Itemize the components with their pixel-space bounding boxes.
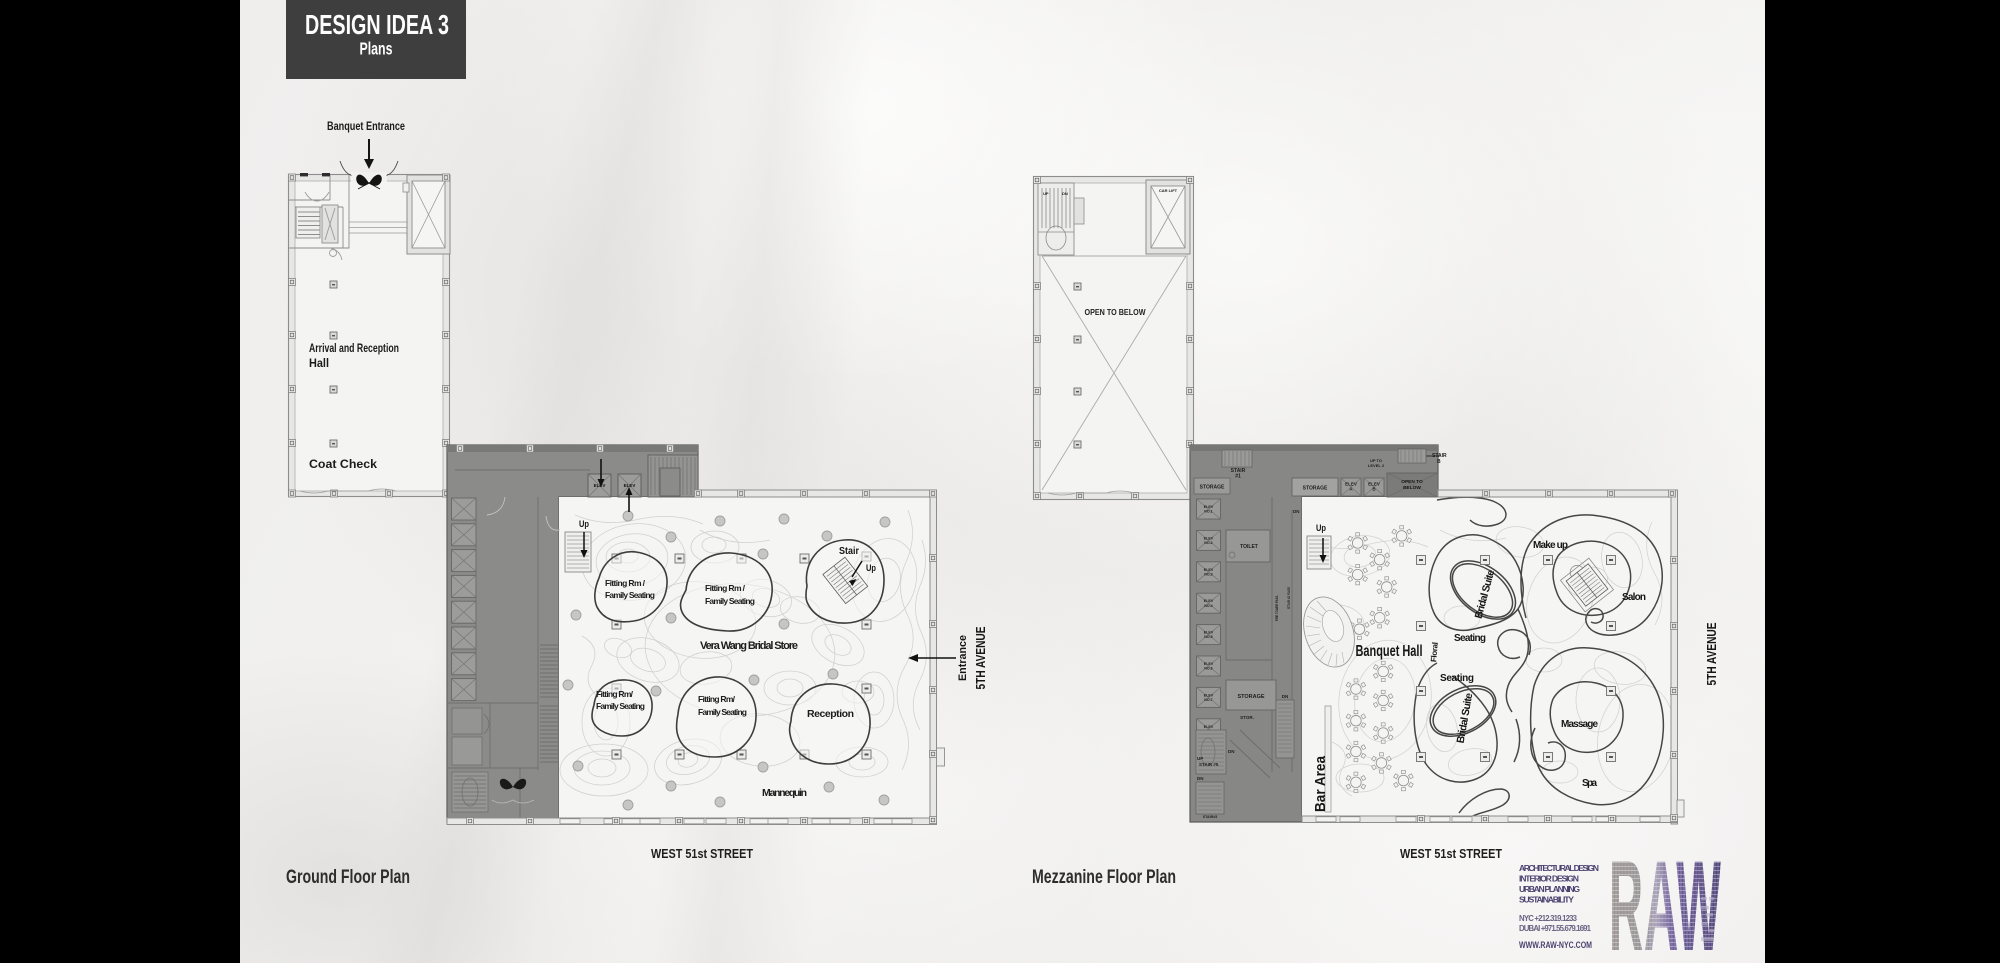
svg-text:UP: UP <box>1197 756 1203 761</box>
svg-text:ELEV: ELEV <box>1204 693 1214 697</box>
svg-text:Stair: Stair <box>839 546 859 557</box>
svg-text:Fitting Rm/: Fitting Rm/ <box>596 689 634 699</box>
svg-text:NO.2: NO.2 <box>1204 541 1212 545</box>
svg-text:NYC +212.319.1233: NYC +212.319.1233 <box>1519 914 1578 923</box>
svg-text:5TH AVENUE: 5TH AVENUE <box>973 626 988 689</box>
svg-text:Make up: Make up <box>1533 540 1568 551</box>
svg-text:Up: Up <box>1316 523 1326 534</box>
svg-text:INTERIOR DESIGN: INTERIOR DESIGN <box>1519 874 1579 884</box>
svg-text:Vera Wang Bridal Store: Vera Wang Bridal Store <box>700 640 798 652</box>
svg-text:BELOW: BELOW <box>1403 485 1421 491</box>
svg-text:Seating: Seating <box>1440 673 1474 684</box>
svg-text:ELEV: ELEV <box>1204 536 1214 540</box>
svg-text:STAIR#5: STAIR#5 <box>1203 815 1218 819</box>
svg-text:STAIR #2 PASS: STAIR #2 PASS <box>1286 587 1291 609</box>
svg-text:Mannequin: Mannequin <box>762 787 807 799</box>
svg-text:Entrance: Entrance <box>957 635 969 681</box>
svg-text:STORAGE: STORAGE <box>1303 486 1328 492</box>
svg-text:STORAGE: STORAGE <box>1200 485 1225 491</box>
svg-text:Fitting Rm /: Fitting Rm / <box>705 583 746 593</box>
svg-text:URBAN PLANNING: URBAN PLANNING <box>1519 884 1580 894</box>
svg-text:Seating: Seating <box>1454 633 1486 644</box>
svg-text:Massage: Massage <box>1561 719 1598 730</box>
svg-text:ARCHITECTURAL DESIGN: ARCHITECTURAL DESIGN <box>1519 863 1599 873</box>
svg-text:TOILET: TOILET <box>1240 544 1258 550</box>
svg-text:ELEV: ELEV <box>1204 568 1214 572</box>
svg-text:ELEV: ELEV <box>1204 662 1214 666</box>
svg-text:Family Seating: Family Seating <box>698 707 747 717</box>
svg-text:B: B <box>1437 459 1441 465</box>
svg-text:Fitting Rm/: Fitting Rm/ <box>698 694 736 704</box>
svg-text:Coat Check: Coat Check <box>309 457 377 471</box>
svg-text:Bar Area: Bar Area <box>1312 755 1329 812</box>
svg-text:NO.3: NO.3 <box>1204 572 1212 576</box>
svg-text:FIRE TOWER PASS.: FIRE TOWER PASS. <box>1274 595 1279 621</box>
svg-text:ELEV: ELEV <box>1204 599 1214 603</box>
svg-text:DN: DN <box>1228 749 1235 754</box>
svg-text:ELEV: ELEV <box>1204 725 1214 729</box>
svg-text:WWW.RAW-NYC.COM: WWW.RAW-NYC.COM <box>1519 940 1592 950</box>
svg-text:OPEN TO BELOW: OPEN TO BELOW <box>1085 308 1146 317</box>
svg-text:Spa: Spa <box>1582 778 1597 789</box>
svg-text:DN: DN <box>1062 191 1068 196</box>
svg-text:CAR LIFT: CAR LIFT <box>1159 188 1178 193</box>
svg-text:5TH AVENUE: 5TH AVENUE <box>1704 622 1719 685</box>
svg-text:NO.7: NO.7 <box>1204 698 1212 702</box>
svg-text:Ground Floor Plan: Ground Floor Plan <box>286 867 410 888</box>
svg-text:STOR.: STOR. <box>1240 715 1254 720</box>
svg-text:DN: DN <box>1282 694 1289 699</box>
svg-text:Floral: Floral <box>1429 642 1440 663</box>
svg-text:Salon: Salon <box>1622 592 1646 603</box>
svg-text:ELEV: ELEV <box>594 483 606 488</box>
svg-text:DN: DN <box>1293 509 1300 514</box>
svg-text:SUSTAINABILITY: SUSTAINABILITY <box>1519 895 1574 905</box>
svg-text:Mezzanine Floor Plan: Mezzanine Floor Plan <box>1032 867 1176 888</box>
svg-text:Plans: Plans <box>360 39 393 59</box>
svg-text:NO.4: NO.4 <box>1204 604 1212 608</box>
svg-text:OPEN TO: OPEN TO <box>1401 479 1423 485</box>
svg-text:Up: Up <box>579 519 589 530</box>
svg-text:ELEV: ELEV <box>1204 631 1214 635</box>
svg-text:WEST 51st STREET: WEST 51st STREET <box>1400 846 1502 861</box>
svg-text:Family Seating: Family Seating <box>705 596 755 606</box>
svg-text:Banquet Hall: Banquet Hall <box>1356 643 1423 660</box>
svg-text:STAIR #5: STAIR #5 <box>1199 762 1219 767</box>
svg-text:ELEV: ELEV <box>624 483 636 488</box>
svg-text:NO.5: NO.5 <box>1204 635 1212 639</box>
svg-text:STORAGE: STORAGE <box>1237 694 1264 700</box>
svg-text:Arrival and Reception: Arrival and Reception <box>309 341 399 355</box>
svg-text:#1: #1 <box>1235 474 1241 480</box>
svg-text:ELEV: ELEV <box>1204 505 1214 509</box>
svg-text:DN: DN <box>1197 776 1204 781</box>
svg-text:LEVEL 2: LEVEL 2 <box>1368 463 1385 468</box>
svg-text:Fitting Rm /: Fitting Rm / <box>605 578 646 588</box>
svg-text:DUBAI +971.55.679.1691: DUBAI +971.55.679.1691 <box>1519 924 1592 933</box>
svg-text:WEST 51st STREET: WEST 51st STREET <box>651 846 753 861</box>
svg-text:Family Seating: Family Seating <box>596 701 645 711</box>
svg-text:DESIGN IDEA 3: DESIGN IDEA 3 <box>305 9 449 40</box>
svg-text:NO.1: NO.1 <box>1204 510 1212 514</box>
svg-text:Banquet Entrance: Banquet Entrance <box>327 119 405 133</box>
svg-text:Family Seating: Family Seating <box>605 590 655 600</box>
svg-text:Hall: Hall <box>309 356 329 370</box>
svg-text:Reception: Reception <box>807 708 854 720</box>
svg-text:NO.6: NO.6 <box>1204 667 1212 671</box>
svg-text:Up: Up <box>866 563 876 573</box>
svg-text:UP: UP <box>1043 191 1049 196</box>
